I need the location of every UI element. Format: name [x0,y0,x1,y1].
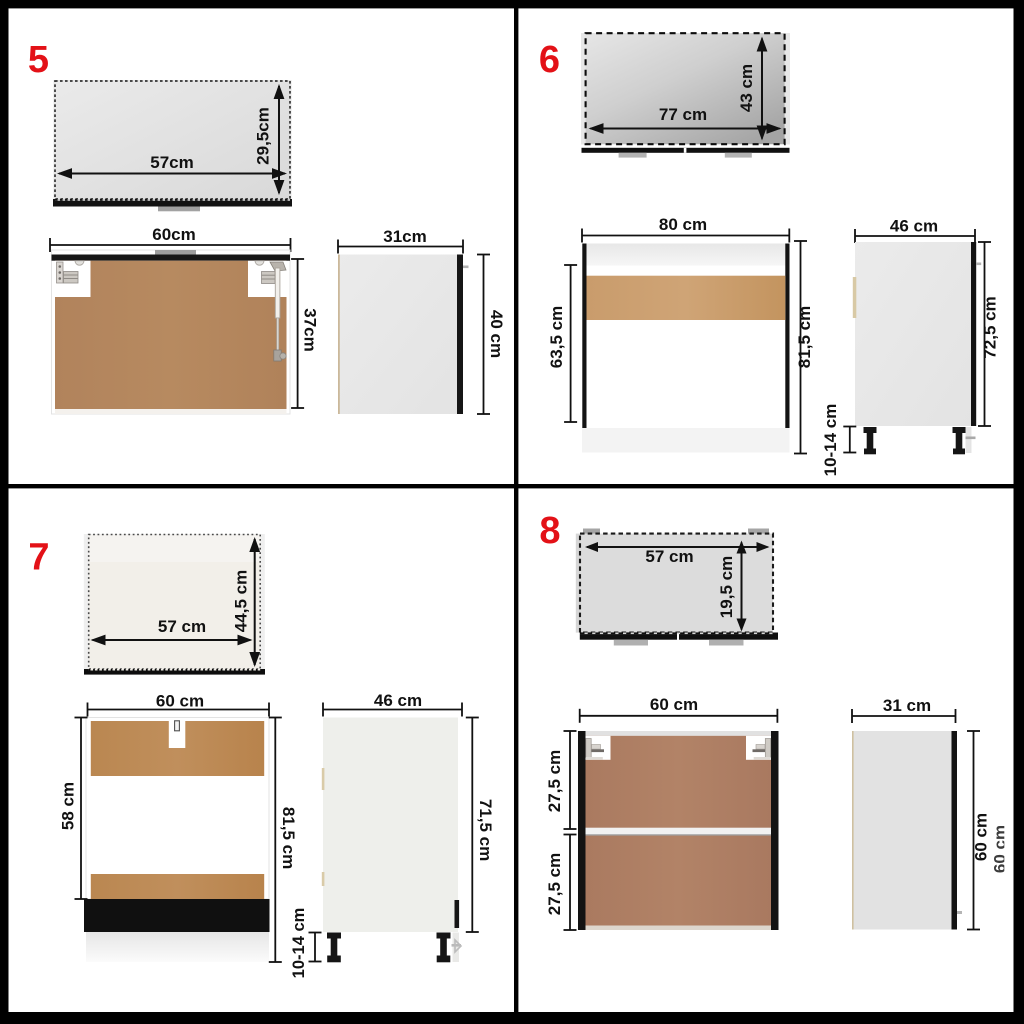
svg-text:40 cm: 40 cm [487,310,506,358]
svg-text:10-14 cm: 10-14 cm [821,404,840,477]
svg-text:60 cm: 60 cm [972,813,991,861]
svg-text:60cm: 60cm [152,225,195,244]
svg-text:81,5 cm: 81,5 cm [795,306,814,368]
svg-text:27,5 cm: 27,5 cm [545,853,564,915]
svg-text:7: 7 [28,537,49,579]
svg-text:63,5 cm: 63,5 cm [547,306,566,368]
svg-text:6: 6 [539,39,560,81]
svg-text:27,5 cm: 27,5 cm [545,750,564,812]
svg-text:81,5 cm: 81,5 cm [279,807,298,869]
svg-text:80 cm: 80 cm [659,215,707,234]
svg-text:37cm: 37cm [301,308,320,351]
svg-text:72,5 cm: 72,5 cm [981,296,1000,358]
svg-text:31cm: 31cm [383,227,426,246]
svg-text:71,5 cm: 71,5 cm [476,799,495,861]
svg-text:57cm: 57cm [150,153,193,172]
svg-text:8: 8 [539,510,560,552]
svg-text:77 cm: 77 cm [659,105,707,124]
svg-text:5: 5 [28,39,49,81]
svg-text:19,5 cm: 19,5 cm [717,556,736,618]
svg-text:29,5cm: 29,5cm [254,107,273,165]
svg-text:58 cm: 58 cm [59,782,78,830]
svg-text:60 cm: 60 cm [650,695,698,714]
svg-text:10-14 cm: 10-14 cm [290,908,308,979]
svg-text:57 cm: 57 cm [645,547,693,566]
svg-text:31 cm: 31 cm [883,696,931,715]
svg-text:60 cm: 60 cm [156,692,204,711]
svg-text:46 cm: 46 cm [374,691,422,710]
svg-text:57 cm: 57 cm [158,617,206,636]
svg-text:43 cm: 43 cm [737,64,756,112]
svg-text:46 cm: 46 cm [890,217,938,236]
svg-text:44,5 cm: 44,5 cm [232,570,251,632]
